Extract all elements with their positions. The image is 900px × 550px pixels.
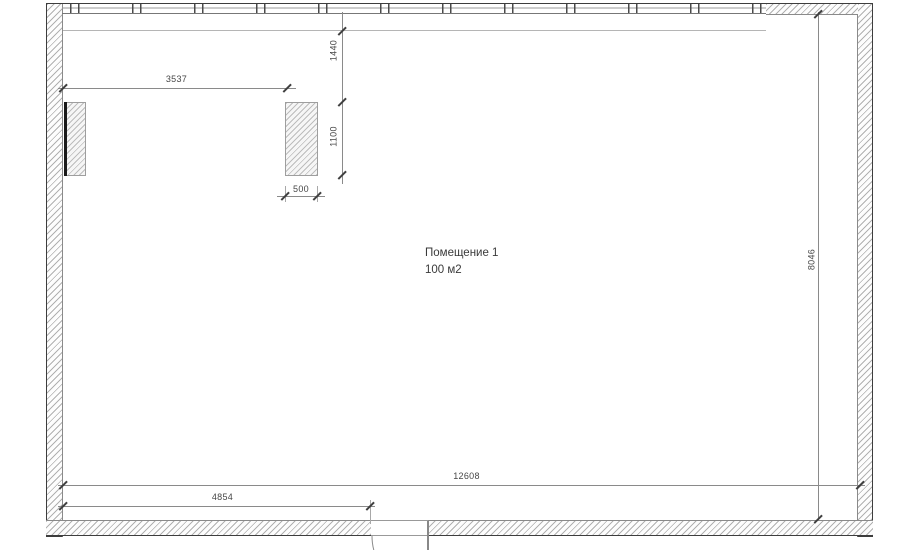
dim-label-window-to-column: 1440 [329, 35, 340, 67]
dim-line-wall-to-column [58, 88, 296, 89]
pier-right [285, 102, 318, 176]
wall-bottom [46, 520, 873, 536]
wall-right [857, 3, 873, 537]
wall-top-right-segment [766, 3, 858, 15]
pier-left [65, 102, 86, 176]
window-sill-line [63, 30, 766, 31]
window-band [62, 3, 766, 14]
dim-label-wall-to-door: 4854 [185, 492, 260, 503]
dim-label-column-width: 500 [282, 184, 320, 195]
dim-label-column-height: 1100 [329, 121, 340, 153]
pier-left-wall-edge [64, 102, 67, 176]
dim-line-vertical-chain [342, 12, 343, 184]
dim-label-total-width: 12608 [429, 471, 504, 482]
dim-line-total-width [58, 485, 865, 486]
room-area: 100 м2 [425, 262, 498, 279]
dim-line-wall-to-door [58, 506, 375, 507]
room-label: Помещение 1 100 м2 [425, 245, 498, 279]
dim-label-wall-to-column: 3537 [139, 74, 214, 85]
dim-line-total-depth [818, 12, 819, 521]
floor-plan-canvas: 3537 1440 1100 500 Помещение 1 100 м2 80… [0, 0, 900, 550]
door-opening [371, 520, 428, 536]
door-swing-arc [370, 536, 428, 550]
room-name: Помещение 1 [425, 245, 498, 262]
dim-label-total-depth: 8046 [807, 243, 818, 277]
wall-left [46, 3, 63, 537]
